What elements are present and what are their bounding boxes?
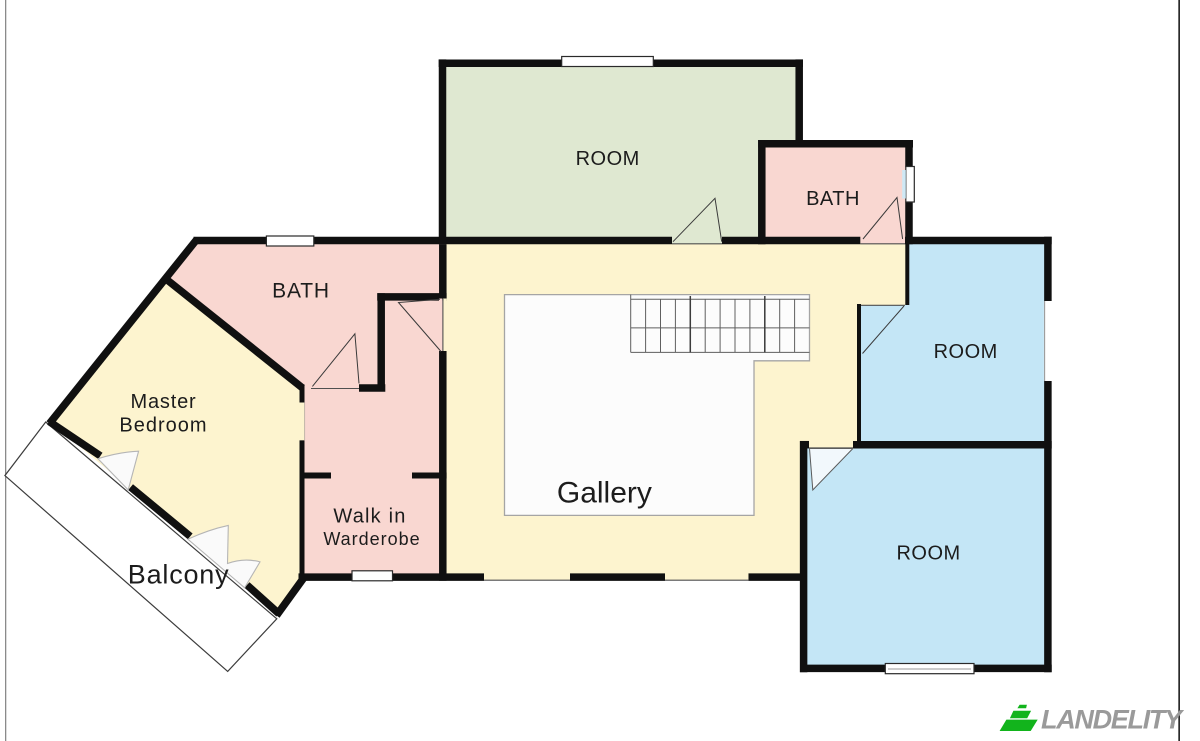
svg-text:ROOM: ROOM: [934, 341, 998, 363]
svg-text:Warderobe: Warderobe: [323, 529, 420, 549]
svg-text:Bedroom: Bedroom: [119, 415, 207, 437]
svg-text:BATH: BATH: [272, 280, 330, 303]
svg-text:Master: Master: [131, 391, 197, 413]
svg-text:Walk in: Walk in: [333, 506, 406, 528]
svg-text:Gallery: Gallery: [557, 477, 652, 510]
svg-text:ROOM: ROOM: [576, 148, 640, 170]
svg-text:ROOM: ROOM: [896, 542, 960, 564]
svg-text:LANDELITY: LANDELITY: [1041, 705, 1185, 735]
svg-text:Balcony: Balcony: [128, 560, 230, 590]
svg-text:BATH: BATH: [806, 188, 860, 210]
